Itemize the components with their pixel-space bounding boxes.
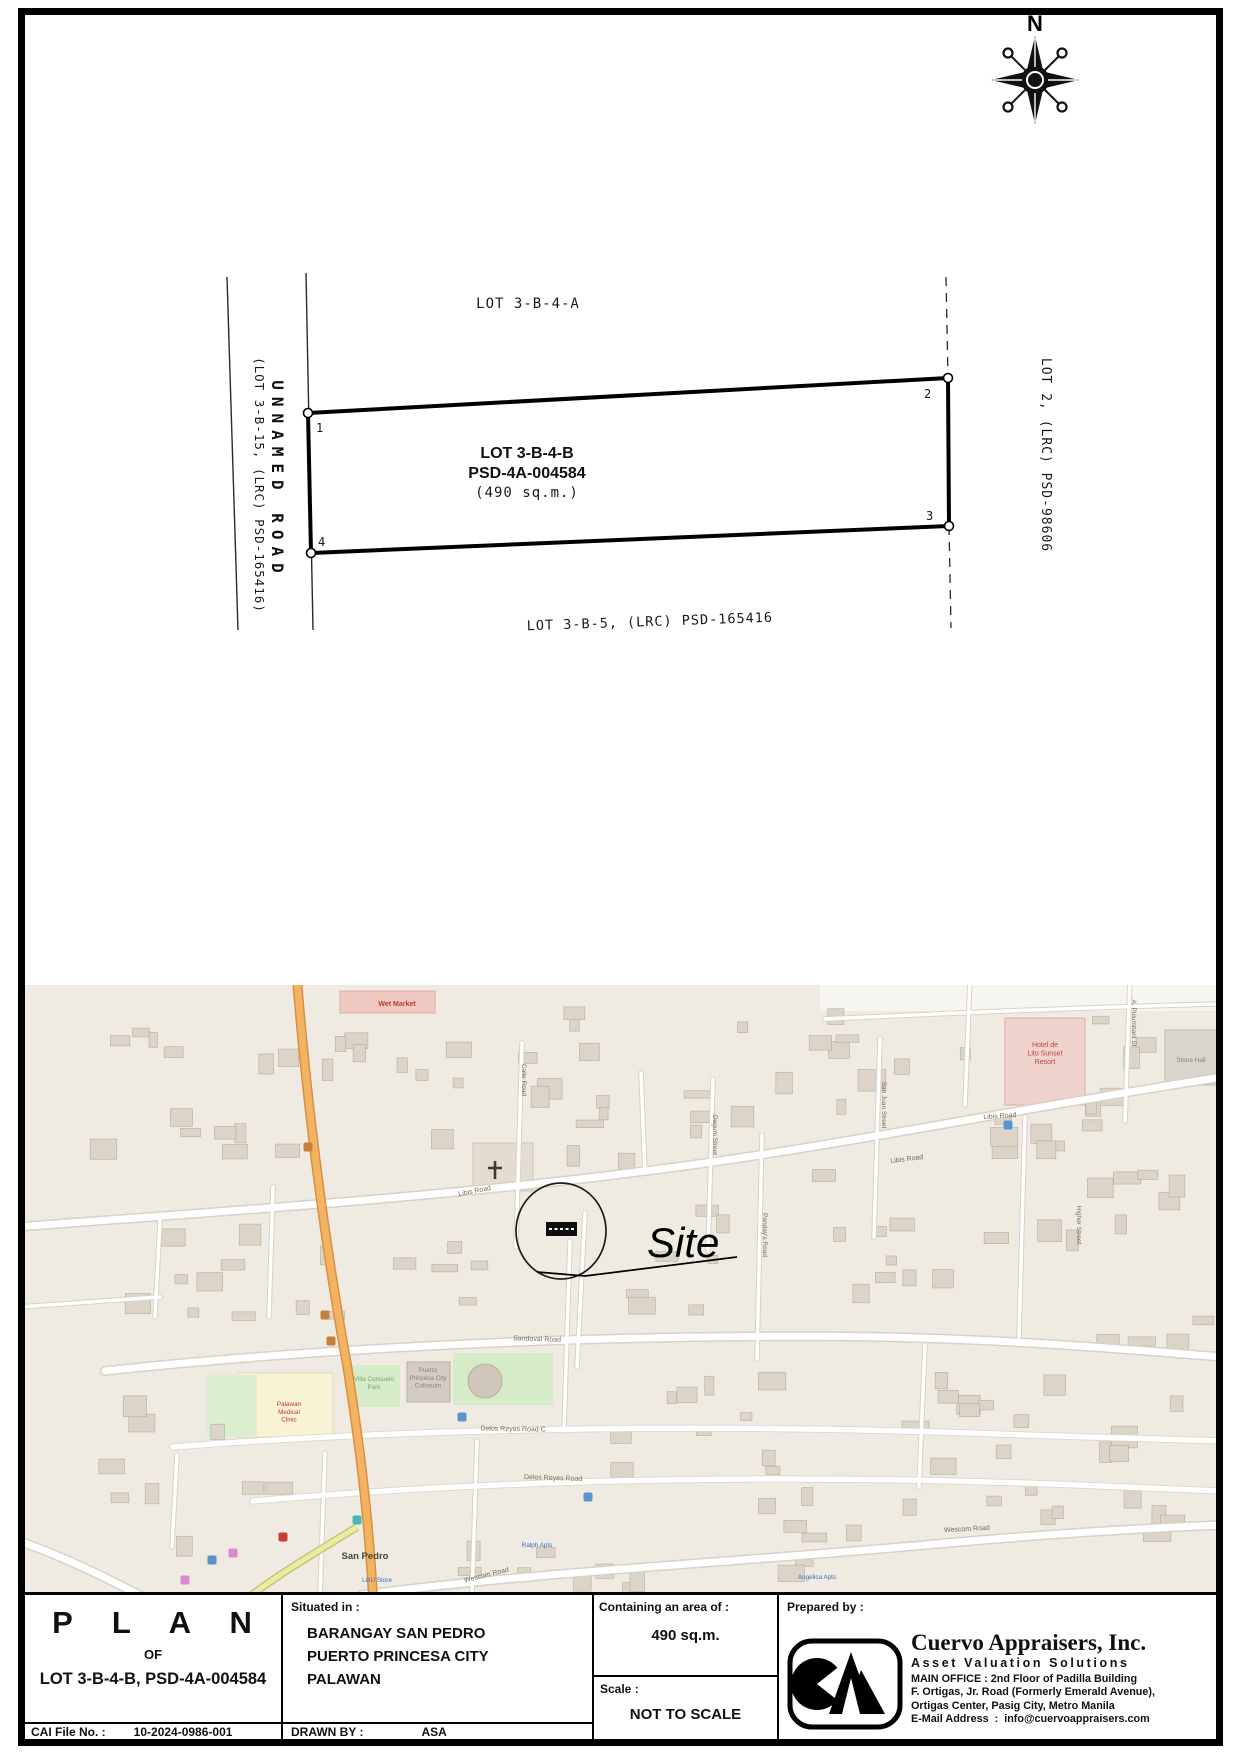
poi-red-icon [279,1533,288,1542]
situated-label: Situated in : [283,1595,592,1614]
company-tagline: Asset Valuation Solutions [911,1656,1211,1670]
map-building [133,1028,150,1037]
map-building [1110,1446,1129,1462]
company-email: E-Mail Address : info@cuervoappraisers.c… [911,1713,1211,1726]
corner-4-marker [307,549,316,558]
plan-title-cell: P L A N OF LOT 3-B-4-B, PSD-4A-004584 [25,1595,281,1722]
map-building [265,1482,293,1494]
area-value: 490 sq.m. [594,1627,777,1644]
map-building [176,1536,192,1556]
scale-value: NOT TO SCALE [594,1706,777,1723]
map-building [996,1445,1011,1459]
map-building [938,1390,959,1403]
map-building [875,1272,895,1282]
north-compass-icon: N [985,12,1085,128]
map-building [222,1144,247,1159]
map-building [935,1372,948,1389]
map-building [111,1493,129,1503]
north-lot-label: LOT 3-B-4-A [476,296,580,312]
map-building [1044,1375,1066,1395]
compass-n-label: N [1027,12,1043,36]
map-building [628,1297,655,1314]
map-building [296,1301,309,1315]
company-address-2: F. Ortigas, Jr. Road (Formerly Emerald A… [911,1686,1211,1699]
map-building [576,1120,603,1128]
map-building [677,1387,697,1403]
map-building [239,1224,261,1245]
company-address-1: MAIN OFFICE : 2nd Floor of Padilla Build… [911,1673,1211,1686]
map-building [214,1126,236,1139]
poi-pink-icon [181,1576,190,1585]
map-building [276,1144,300,1158]
poi-pink-icon [229,1549,238,1558]
map-building [99,1459,125,1474]
plan-of-label: OF [25,1647,281,1662]
map-building [259,1054,274,1074]
map-building [886,1256,897,1265]
cai-file-cell: CAI File No. : 10-2024-0986-001 [25,1724,281,1739]
map-building [762,1450,775,1466]
drawn-by-value: ASA [421,1725,446,1739]
map-building [690,1125,701,1138]
map-building [626,1290,648,1298]
area-cell: Containing an area of : 490 sq.m. [594,1595,777,1675]
map-building [161,1229,185,1246]
lot-name-label: LOT 3-B-4-B [480,445,573,462]
poi-orange-icon [327,1337,336,1346]
west-road-sublabel: (LOT 3-B-15, (LRC) PSD-165416) [252,357,267,613]
map-street-label: Panday's Road [761,1213,768,1257]
map-poi-label: Angelica Apts [798,1574,836,1581]
map-building [1115,1215,1127,1234]
map-building [175,1275,188,1284]
map-building [766,1466,780,1474]
map-poi-label: LGU Store [362,1577,392,1584]
map-building [232,1312,255,1321]
scale-cell: Scale : NOT TO SCALE [594,1677,777,1739]
map-building [684,1091,711,1098]
poi-orange-icon [304,1143,313,1152]
corner-1-number: 1 [316,421,323,435]
map-building [181,1128,201,1136]
map-building [459,1297,476,1305]
map-building [221,1260,245,1271]
map-poi-label: Wet Market [378,1001,416,1008]
map-building [90,1139,117,1159]
map-building [630,1572,645,1592]
map-building [903,1499,916,1515]
map-building [145,1484,159,1504]
map-building [1193,1316,1214,1325]
map-street-label: A. Pulumbarit St [1130,1000,1137,1047]
map-building [1014,1415,1029,1428]
corner-3-number: 3 [926,509,933,523]
south-lot-label: LOT 3-B-5, (LRC) PSD-165416 [526,610,773,635]
map-building [149,1032,157,1047]
lot-boundary [308,378,949,553]
map-building [531,1086,549,1107]
map-building [599,1108,608,1120]
dome-building [468,1364,502,1398]
map-building [667,1392,676,1404]
drawn-by-cell: DRAWN BY : ASA [283,1724,592,1739]
map-building [809,1036,831,1051]
drawn-by-label: DRAWN BY : [283,1725,363,1739]
map-building [1082,1120,1102,1131]
corner-2-marker [944,374,953,383]
map-building [802,1533,827,1542]
map-building [471,1261,488,1270]
map-building [987,1496,1002,1506]
map-building [738,1022,748,1033]
map-building [1087,1178,1113,1198]
west-road-name: UNNAMED ROAD [268,380,287,580]
map-street-label: Calle Road [520,1064,527,1097]
map-building [242,1482,263,1495]
map-building [567,1145,580,1166]
map-building [705,1376,714,1395]
plan-title: P L A N [25,1605,281,1641]
poi-orange-icon [321,1311,330,1320]
map-building [931,1458,957,1474]
cai-file-label: CAI File No. : [25,1725,106,1739]
map-building [776,1072,793,1094]
map-building [211,1424,225,1440]
prepared-by-label: Prepared by : [779,1595,1216,1614]
map-building [611,1463,634,1480]
map-building [784,1520,807,1532]
map-building [834,1227,846,1241]
map-building [188,1308,199,1317]
map-building [959,1404,979,1417]
map-building [837,1099,846,1114]
map-building [1170,1396,1183,1412]
map-building [164,1047,183,1058]
corner-1-marker [304,409,313,418]
survey-plan-page: N 1 2 [0,0,1241,1754]
site-label: Site [647,1219,719,1266]
poi-blue-icon [1004,1121,1013,1130]
lot-plan-drawing: 1 2 3 4 LOT 3-B-4-A LOT 3-B-4-B PSD-4A-0… [150,240,1100,650]
map-building [335,1036,346,1051]
map-building [1169,1175,1185,1197]
map-building [802,1488,813,1506]
map-building [431,1129,453,1149]
map-street-label: Higher Street [1075,1206,1082,1244]
situated-barangay: BARANGAY SAN PEDRO [307,1622,592,1645]
map-building [853,1284,869,1303]
map-building [741,1413,752,1421]
location-map: Libis RoadLibis RoadLibis RoadSandoval R… [25,985,1216,1593]
corner-3-marker [945,522,954,531]
prepared-by-cell: Prepared by : Cuervo Appraisers, Inc. As… [779,1595,1216,1739]
map-building [448,1242,462,1254]
map-poi-label: Ralph Apts [522,1542,552,1549]
situated-cell: Situated in : BARANGAY SAN PEDRO PUERTO … [283,1595,592,1722]
map-building [416,1070,428,1081]
poi-teal-icon [353,1516,362,1525]
map-building [322,1059,333,1081]
map-building [689,1305,704,1315]
map-building [197,1273,223,1291]
map-building [1037,1141,1056,1159]
boundary-dashed-line [949,526,951,628]
map-building [564,1007,585,1020]
cuervo-logo-icon [787,1638,903,1730]
map-building [890,1218,915,1231]
map-building [110,1036,129,1046]
map-building [991,1127,1018,1146]
company-name: Cuervo Appraisers, Inc. [911,1631,1211,1655]
map-building [597,1096,610,1109]
map-building [894,1059,909,1075]
corner-2-number: 2 [924,387,931,401]
lot-psd-label: PSD-4A-004584 [468,465,586,482]
boundary-dashed-line [946,277,948,378]
map-building [1031,1124,1052,1143]
map-building [1138,1170,1158,1179]
map-building [758,1498,775,1514]
area-label: Containing an area of : [594,1595,777,1614]
road-edge-line [227,277,238,630]
map-building [579,1043,599,1061]
poi-blue-icon [208,1556,217,1565]
map-road-label: Delos Reyes Road C [480,1425,545,1433]
poi-blue-icon [458,1413,467,1422]
map-building [1113,1172,1141,1184]
scale-label: Scale : [594,1677,777,1696]
company-address-3: Ortigas Center, Pasig City, Metro Manila [911,1700,1211,1713]
cai-file-value: 10-2024-0986-001 [134,1725,233,1739]
map-building [903,1270,916,1286]
map-street-label: Dagum Street [711,1115,718,1155]
map-building [758,1372,786,1390]
corner-4-number: 4 [318,535,325,549]
map-building [446,1042,471,1058]
map-building [731,1106,754,1127]
map-building [394,1258,416,1269]
map-building [1128,1337,1155,1346]
map-building [812,1169,835,1181]
map-street-label: San Juan Street [880,1082,887,1129]
map-building [933,1270,954,1289]
map-building [1038,1220,1062,1242]
situated-city: PUERTO PRINCESA CITY [307,1645,592,1668]
map-building [453,1078,463,1088]
situated-province: PALAWAN [307,1668,592,1691]
map-building [836,1035,859,1042]
map-poi-label: San Pedro [342,1551,389,1562]
map-building [979,1400,994,1410]
map-building [353,1044,366,1061]
map-poi-label: Stone Hall [1176,1057,1205,1064]
map-building [1092,1016,1109,1024]
map-building [1052,1506,1063,1519]
map-building [397,1058,407,1073]
poi-blue-icon [584,1493,593,1502]
lot-area-label: (490 sq.m.) [475,485,579,501]
map-building [846,1525,861,1541]
map-building [235,1124,246,1143]
plan-lot-line: LOT 3-B-4-B, PSD-4A-004584 [25,1670,281,1689]
map-building [123,1396,146,1417]
map-building [170,1109,192,1127]
map-building [279,1049,299,1067]
map-building [432,1264,458,1272]
east-lot-label: LOT 2, (LRC) PSD-98606 [1038,358,1053,552]
map-building [984,1232,1009,1243]
